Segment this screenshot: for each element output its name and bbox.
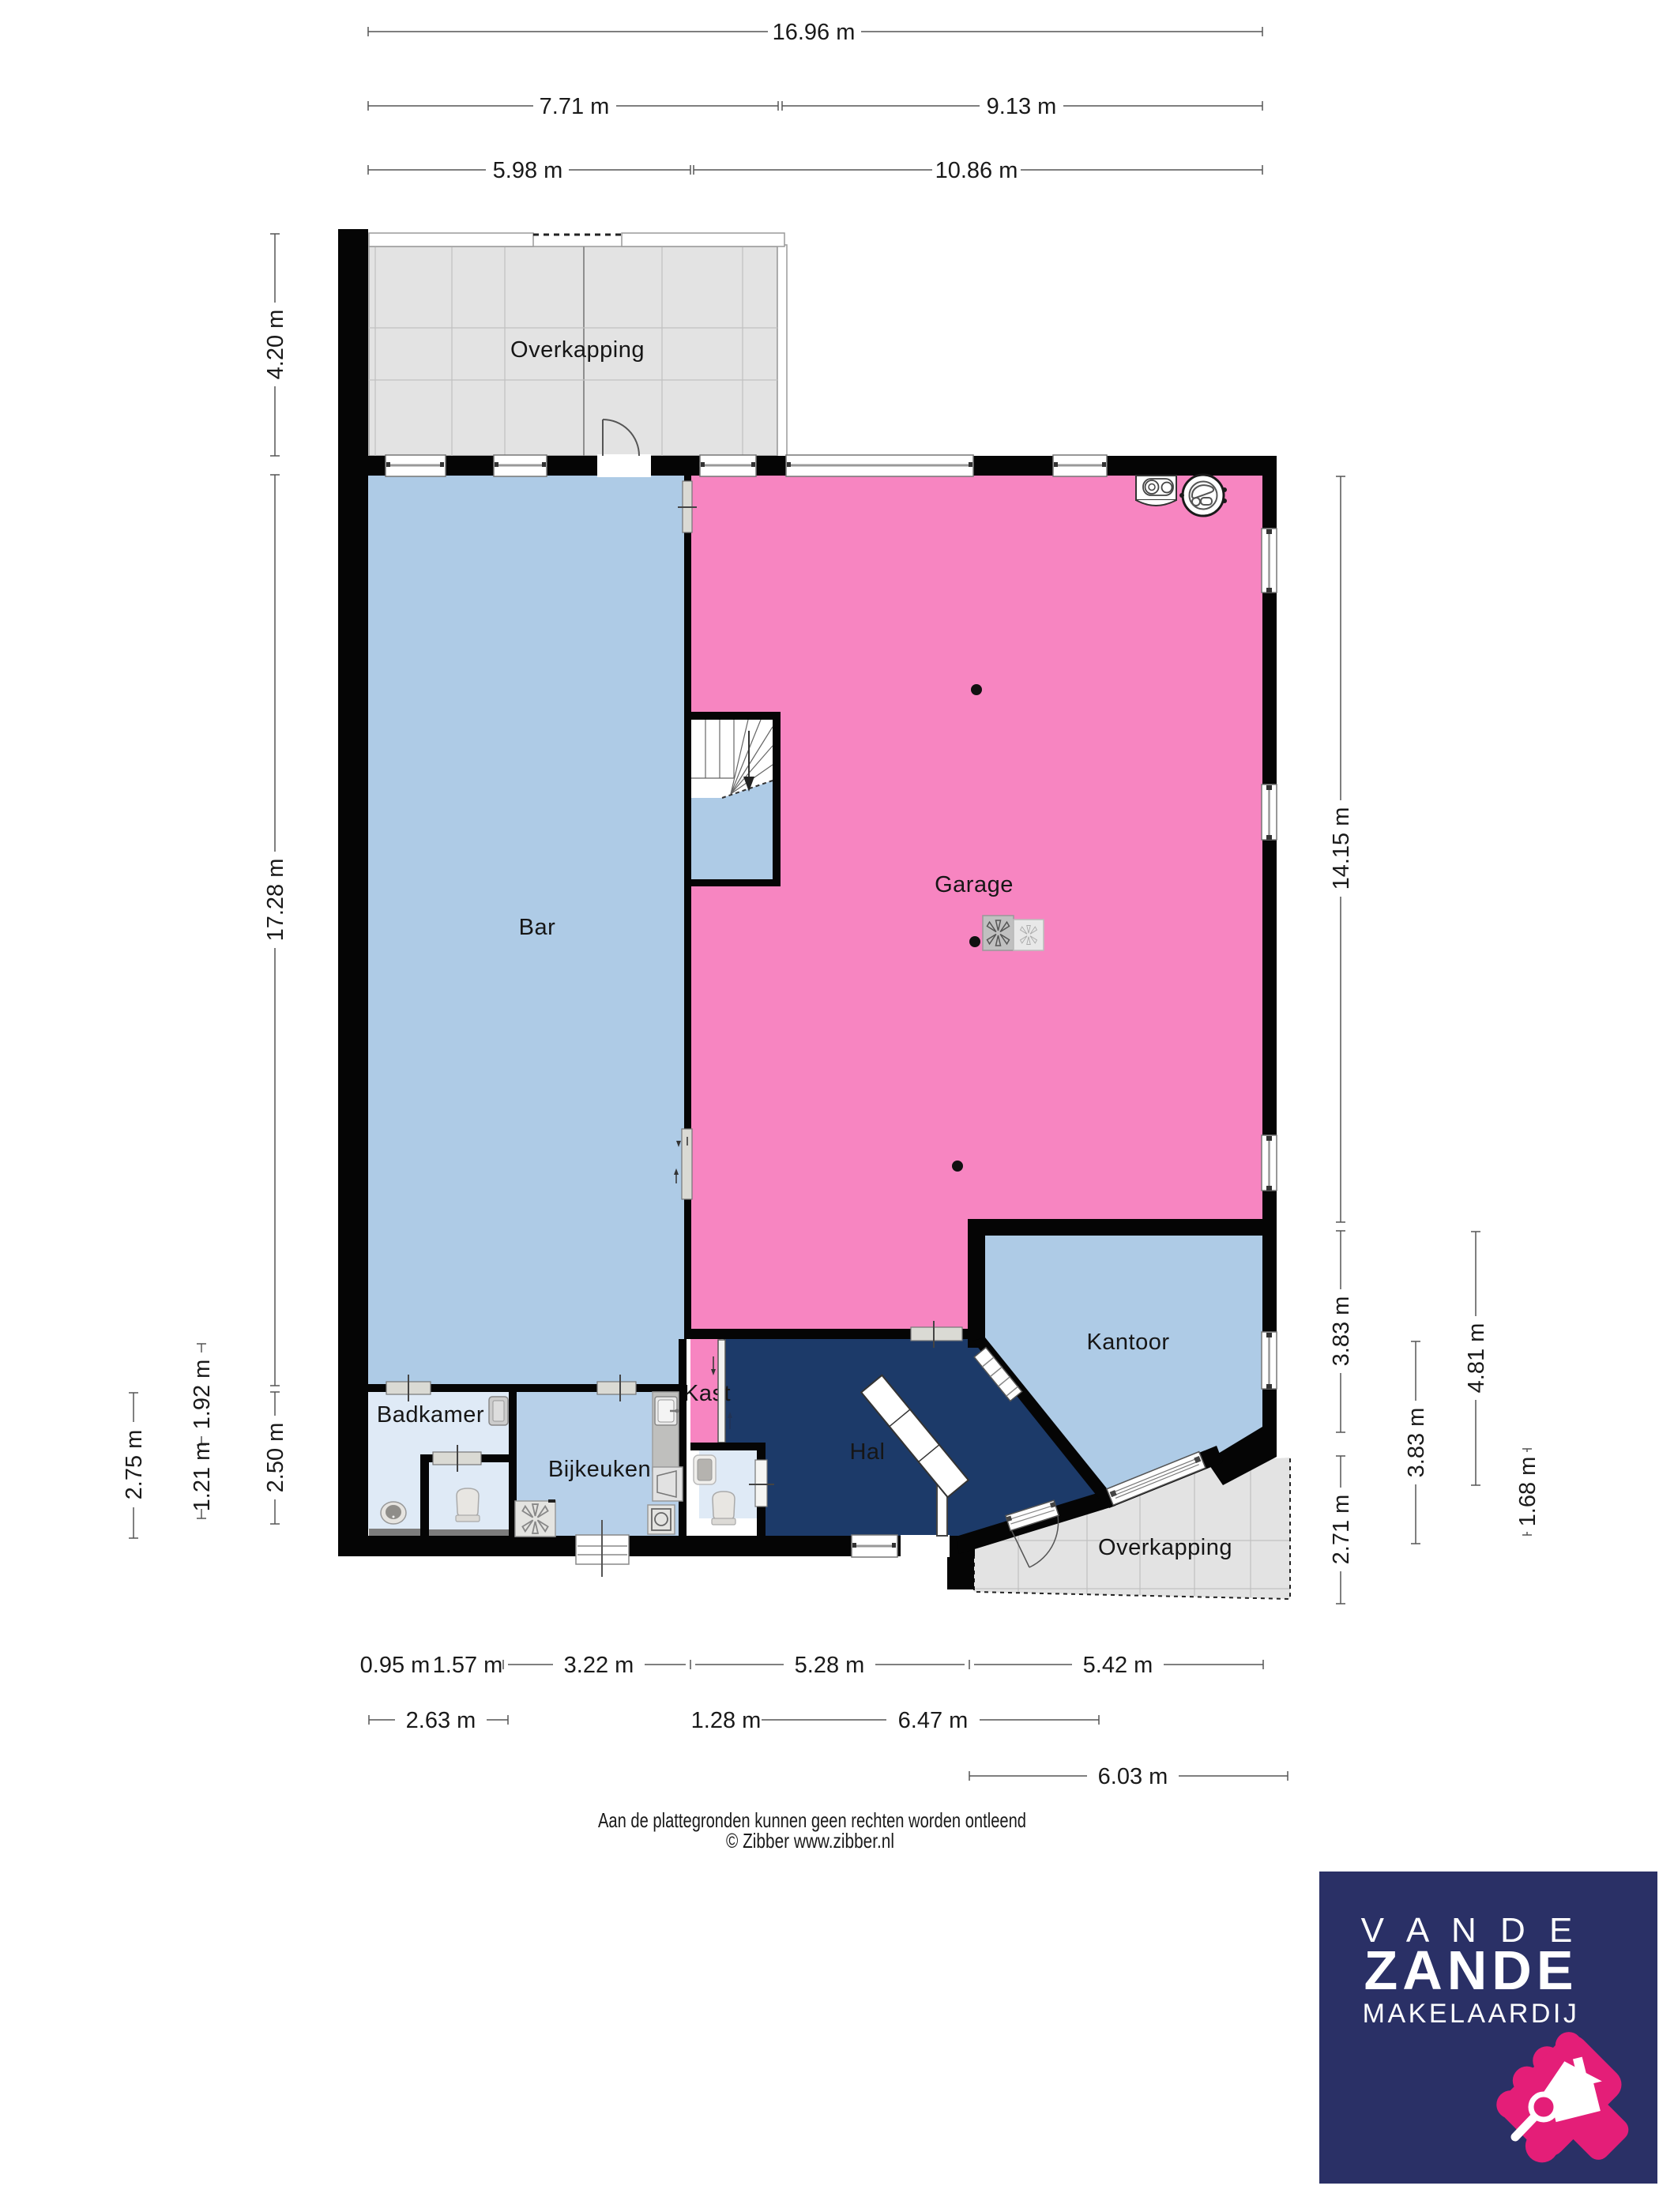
- svg-text:6.03 m: 6.03 m: [1098, 1764, 1168, 1789]
- svg-text:1.21 m: 1.21 m: [190, 1442, 215, 1512]
- svg-text:5.98 m: 5.98 m: [493, 158, 563, 183]
- svg-text:5.28 m: 5.28 m: [795, 1653, 865, 1678]
- svg-text:4.81 m: 4.81 m: [1464, 1323, 1489, 1394]
- svg-text:Garage: Garage: [935, 872, 1014, 897]
- svg-text:1.28 m: 1.28 m: [691, 1708, 762, 1733]
- svg-text:MAKELAARDIJ: MAKELAARDIJ: [1363, 1999, 1580, 2029]
- svg-text:2.63 m: 2.63 m: [406, 1708, 476, 1733]
- svg-text:Hal: Hal: [849, 1439, 885, 1465]
- svg-text:3.83 m: 3.83 m: [1404, 1408, 1429, 1478]
- svg-text:16.96 m: 16.96 m: [773, 20, 856, 45]
- svg-text:1.68 m: 1.68 m: [1515, 1457, 1540, 1527]
- svg-text:Overkapping: Overkapping: [1098, 1535, 1232, 1560]
- svg-text:Bijkeuken: Bijkeuken: [548, 1457, 651, 1482]
- svg-text:1.92 m: 1.92 m: [190, 1360, 215, 1430]
- svg-text:Bar: Bar: [519, 915, 556, 940]
- svg-text:2.71 m: 2.71 m: [1329, 1495, 1354, 1565]
- svg-text:17.28 m: 17.28 m: [263, 859, 288, 942]
- svg-text:10.86 m: 10.86 m: [935, 158, 1018, 183]
- svg-text:2.50 m: 2.50 m: [263, 1423, 288, 1493]
- svg-text:ZANDE: ZANDE: [1364, 1939, 1578, 2001]
- svg-text:6.47 m: 6.47 m: [898, 1708, 969, 1733]
- svg-text:Badkamer: Badkamer: [377, 1402, 484, 1428]
- svg-text:3.83 m: 3.83 m: [1329, 1296, 1354, 1367]
- svg-text:3.22 m: 3.22 m: [564, 1653, 634, 1678]
- svg-text:© Zibber www.zibber.nl: © Zibber www.zibber.nl: [726, 1829, 894, 1853]
- svg-text:1.57 m: 1.57 m: [433, 1653, 503, 1678]
- svg-text:14.15 m: 14.15 m: [1329, 807, 1354, 890]
- svg-text:7.71 m: 7.71 m: [540, 94, 610, 119]
- svg-text:0.95 m: 0.95 m: [360, 1653, 431, 1678]
- svg-text:Kantoor: Kantoor: [1086, 1330, 1169, 1355]
- svg-text:9.13 m: 9.13 m: [987, 94, 1057, 119]
- svg-text:5.42 m: 5.42 m: [1083, 1653, 1153, 1678]
- svg-text:4.20 m: 4.20 m: [263, 310, 288, 380]
- svg-text:2.75 m: 2.75 m: [122, 1430, 147, 1500]
- svg-text:Overkapping: Overkapping: [510, 337, 645, 363]
